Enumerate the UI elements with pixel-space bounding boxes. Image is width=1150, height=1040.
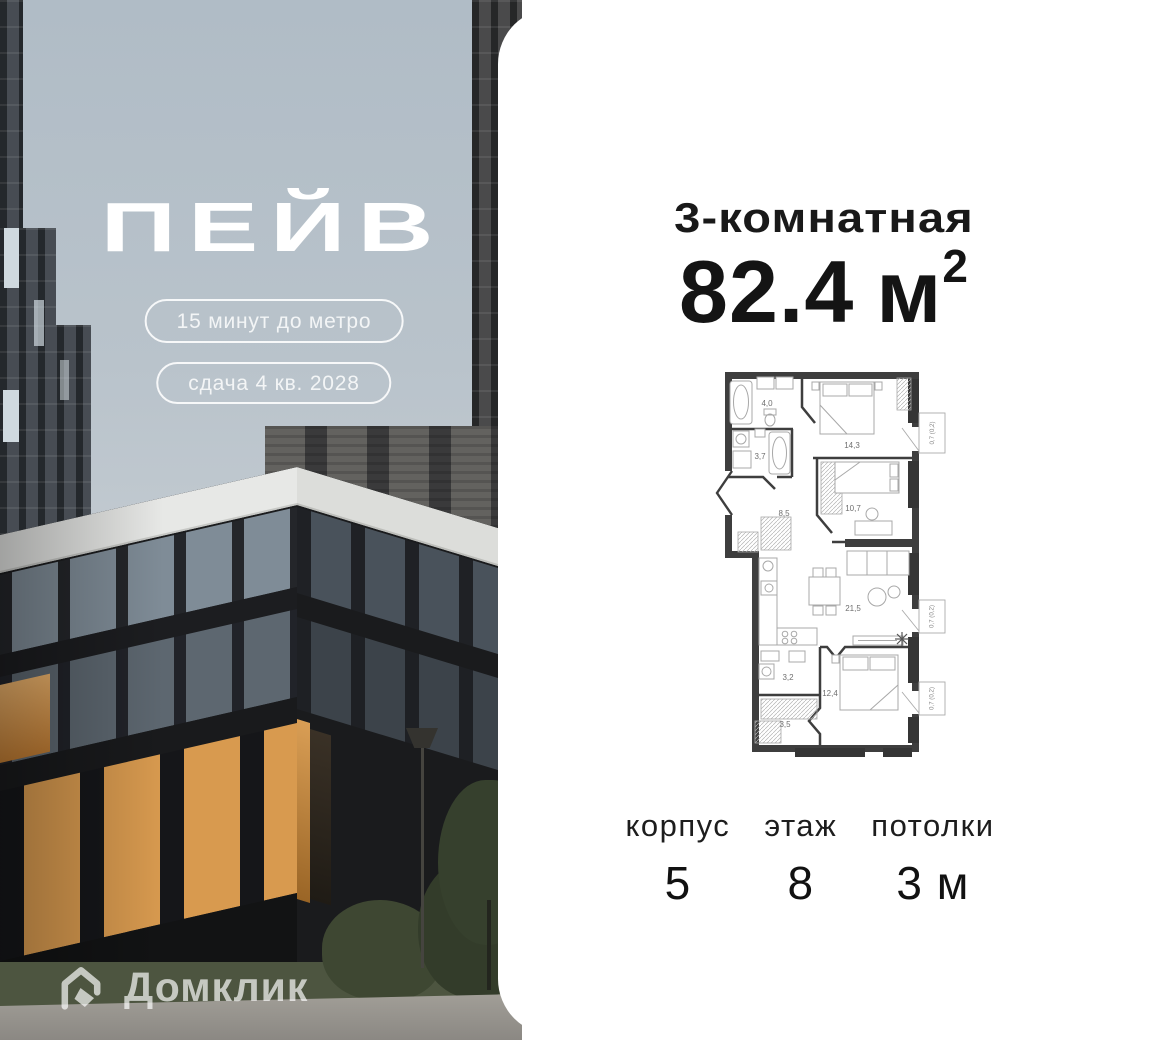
balcony-label-2: 0,7 (0,2) [929, 605, 936, 628]
room-label-bedroom-3: 12,4 [822, 689, 838, 698]
room-label-living-kitchen: 21,5 [845, 604, 861, 613]
interior-wall-thick [845, 539, 912, 547]
street-lamp-pole [421, 746, 424, 968]
room-label-bedroom-1: 14,3 [844, 441, 860, 450]
lit-window [34, 300, 44, 346]
balcony-label-1: 0,7 (0,2) [929, 421, 936, 444]
stat-ceiling-label: потолки [871, 808, 994, 844]
room-label-laundry: 3,2 [782, 673, 794, 682]
foreground-building-left-face [0, 467, 297, 1040]
apartment-type-title: 3-комнатная [459, 194, 1150, 242]
balcony-labels: 0,7 (0,2) 0,7 (0,2) 0,7 (0,2) [929, 421, 937, 710]
completion-date-badge: сдача 4 кв. 2028 [156, 362, 391, 404]
room-label-bathroom: 4,0 [761, 399, 773, 408]
stat-ceiling-value: 3 м [871, 856, 994, 910]
room-label-bedroom-2: 10,7 [845, 504, 861, 513]
stat-floor-label: этаж [764, 808, 837, 844]
room-label-wardrobe: 3,5 [779, 720, 791, 729]
lit-window [60, 360, 69, 400]
lit-window [3, 390, 19, 442]
balcony-label-3: 0,7 (0,2) [929, 687, 936, 710]
room-label-hallway: 8,5 [778, 509, 790, 518]
watermark-brand-label: Домклик [124, 964, 308, 1011]
apartment-card[interactable]: 3-комнатная 82.4м2 [498, 8, 1150, 1035]
apartment-area: 82.4м2 [498, 246, 1150, 338]
area-value: 82.4 [679, 242, 854, 341]
domclick-house-icon [52, 958, 110, 1016]
ac-unit-icon [895, 632, 909, 646]
area-unit: м [876, 242, 942, 341]
stat-building-value: 5 [625, 856, 730, 910]
area-superscript: 2 [942, 240, 969, 292]
listing-card-image: ПЕЙВ 15 минут до метро сдача 4 кв. 2028 … [0, 0, 1150, 1040]
stat-floor: этаж 8 [764, 808, 837, 910]
facade-shading [0, 467, 297, 1040]
floor-plan: 4,0 3,7 14,3 10,7 8,5 21,5 3,2 12,4 3,5 … [705, 365, 955, 765]
stat-floor-value: 8 [764, 856, 837, 910]
room-label-bathroom-2: 3,7 [754, 452, 766, 461]
stat-building-label: корпус [625, 808, 730, 844]
lit-window [4, 228, 19, 288]
stat-building: корпус 5 [625, 808, 730, 910]
lit-window [297, 719, 310, 903]
hero-photo[interactable]: ПЕЙВ 15 минут до метро сдача 4 кв. 2028 … [0, 0, 522, 1040]
tree-trunk [487, 900, 491, 990]
apartment-stats: корпус 5 этаж 8 потолки 3 м [484, 808, 1136, 910]
metro-time-badge: 15 минут до метро [145, 299, 404, 343]
project-logo: ПЕЙВ [101, 192, 446, 262]
domclick-watermark: Домклик [52, 958, 308, 1016]
stat-ceiling: потолки 3 м [871, 808, 994, 910]
